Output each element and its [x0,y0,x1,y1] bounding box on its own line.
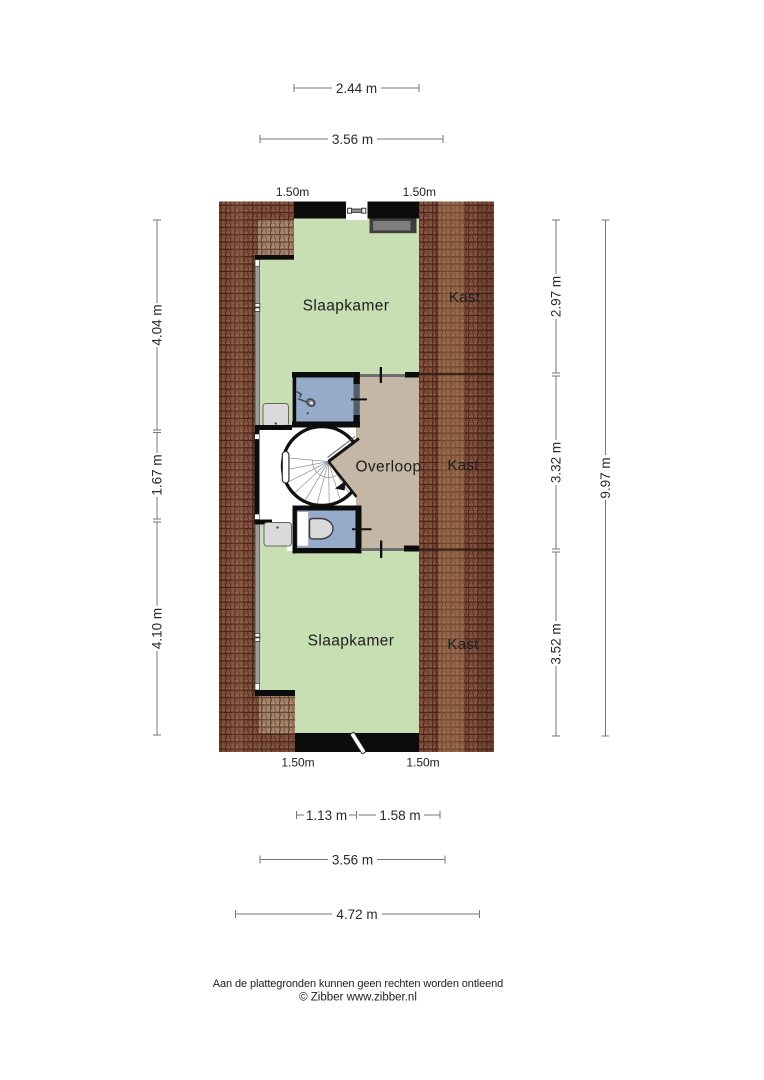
svg-text:2.44 m: 2.44 m [336,81,377,96]
svg-text:Kast: Kast [449,289,481,306]
svg-text:Slaapkamer: Slaapkamer [308,633,395,650]
svg-text:1.50m: 1.50m [281,756,314,770]
svg-text:© Zibber www.zibber.nl: © Zibber www.zibber.nl [299,992,417,1004]
svg-text:1.58 m: 1.58 m [379,808,420,823]
svg-text:Kast: Kast [447,457,479,474]
svg-text:Slaapkamer: Slaapkamer [303,298,390,315]
svg-text:4.10 m: 4.10 m [150,608,165,649]
svg-text:3.52 m: 3.52 m [549,623,564,664]
svg-text:9.97 m: 9.97 m [598,457,613,498]
svg-text:Overloop: Overloop [355,459,421,476]
svg-text:1.13 m: 1.13 m [306,808,347,823]
svg-text:1.50m: 1.50m [276,185,309,199]
svg-text:4.04 m: 4.04 m [150,304,165,345]
svg-text:3.56 m: 3.56 m [332,852,373,867]
svg-text:Kast: Kast [447,636,479,653]
svg-text:Aan de plattegronden kunnen ge: Aan de plattegronden kunnen geen rechten… [213,978,503,990]
svg-text:4.72 m: 4.72 m [336,907,377,922]
svg-text:1.50m: 1.50m [406,756,439,770]
svg-text:3.32 m: 3.32 m [549,442,564,483]
svg-text:1.67 m: 1.67 m [150,454,165,495]
svg-text:1.50m: 1.50m [403,185,436,199]
svg-text:2.97 m: 2.97 m [549,276,564,317]
svg-text:3.56 m: 3.56 m [332,132,373,147]
